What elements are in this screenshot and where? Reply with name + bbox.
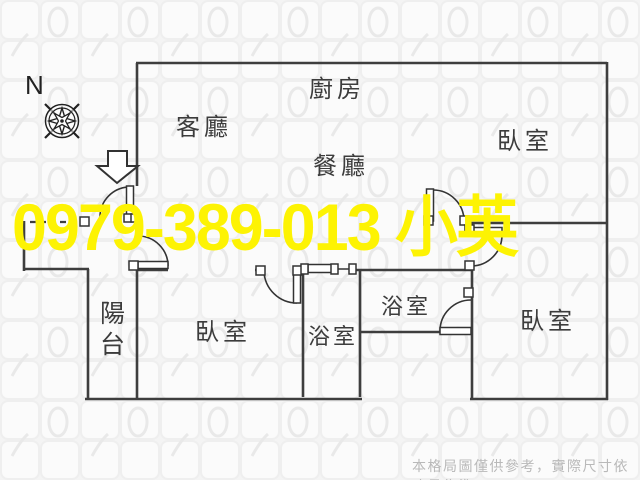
phone-watermark: 0979-389-013 小英 bbox=[12, 190, 517, 264]
room-label-kitchen: 廚房 bbox=[309, 74, 365, 105]
room-label-bathroom-left: 浴室 bbox=[308, 321, 358, 352]
compass-rose-icon bbox=[45, 104, 79, 138]
room-label-bedroom-top-right: 臥室 bbox=[497, 126, 553, 157]
floor-plan-page: N 客廳 廚房 餐廳 臥室 臥室 臥室 陽 台 浴室 浴室 0979-389-0… bbox=[0, 0, 640, 480]
room-label-bedroom-bottom-right: 臥室 bbox=[520, 306, 576, 337]
north-label: N bbox=[25, 70, 44, 101]
room-label-dining: 餐廳 bbox=[313, 151, 369, 182]
room-label-bedroom-left: 臥室 bbox=[195, 317, 251, 348]
room-label-living: 客廳 bbox=[176, 112, 232, 143]
disclaimer-text: 本格局圖僅供參考，實際尺寸依丈量為準 bbox=[412, 456, 640, 480]
room-label-balcony: 陽 台 bbox=[100, 299, 129, 361]
room-label-bathroom-middle: 浴室 bbox=[381, 291, 431, 322]
